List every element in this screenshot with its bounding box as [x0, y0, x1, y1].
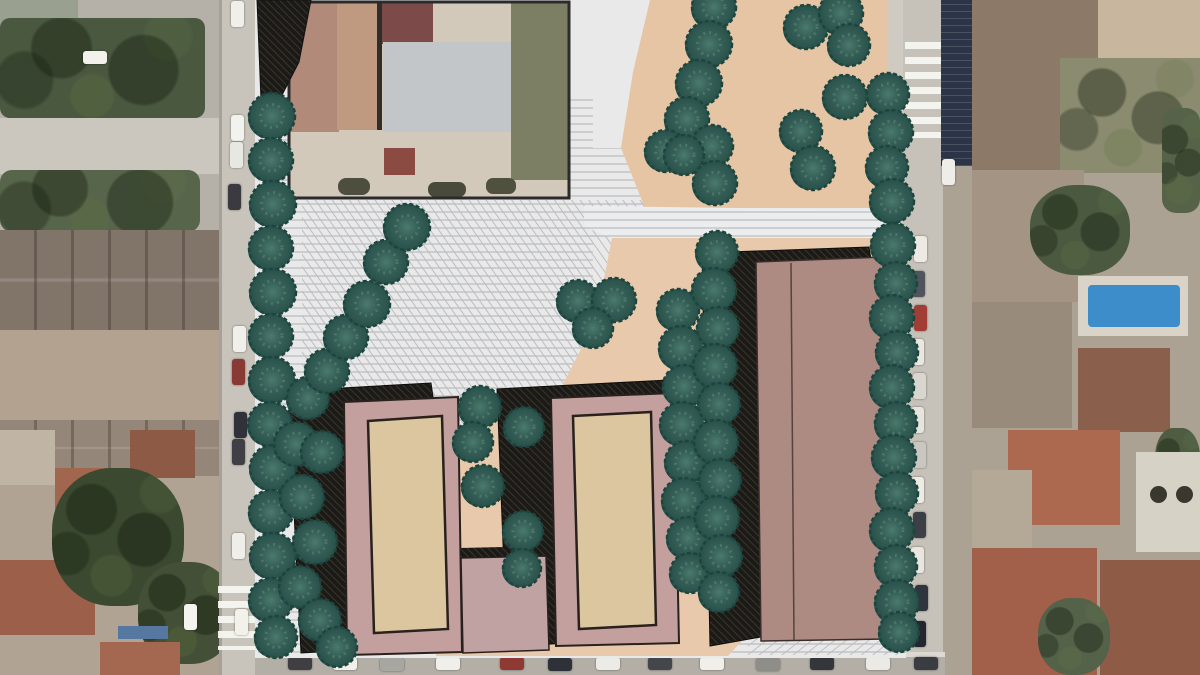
tree-marker [248, 226, 293, 270]
tree-marker [827, 24, 870, 66]
tree-marker [692, 161, 737, 205]
tree-marker [300, 431, 343, 473]
tree-marker [697, 383, 740, 425]
school-green-court [511, 2, 568, 180]
tree-marker [870, 223, 915, 267]
tree-marker [694, 496, 739, 540]
building-b-courtyard [573, 412, 656, 629]
tower-roof [756, 257, 886, 641]
tree-marker [458, 386, 501, 428]
tree-marker [248, 138, 293, 182]
tree-marker [279, 475, 324, 519]
aerial-site-plan-view [0, 0, 1200, 675]
school-shed [384, 148, 415, 175]
tree-marker [869, 179, 914, 223]
school-tree-1 [338, 178, 370, 195]
tree-marker [695, 231, 738, 273]
tree-marker [502, 549, 541, 587]
walkway-lines [584, 206, 888, 240]
tree-marker [254, 616, 297, 658]
tree-marker [698, 459, 741, 501]
tree-marker [822, 75, 867, 119]
tree-marker [692, 344, 737, 388]
school-wing-inner [337, 2, 379, 130]
tree-marker [696, 307, 739, 349]
site-plan-overlay [0, 0, 1200, 675]
school-wall [377, 2, 382, 130]
school-grey-roof [383, 42, 513, 132]
tree-marker [292, 520, 337, 564]
tree-marker [248, 314, 293, 358]
tree-marker [866, 73, 909, 115]
school-tree-2 [428, 182, 466, 197]
tree-marker [461, 465, 504, 507]
school-tree-3 [486, 178, 516, 194]
school-red-roof [377, 2, 433, 44]
tree-marker [699, 535, 742, 577]
tree-marker [691, 268, 736, 312]
tree-marker [693, 420, 738, 464]
tree-marker [790, 146, 835, 190]
building-a-courtyard [368, 416, 448, 633]
